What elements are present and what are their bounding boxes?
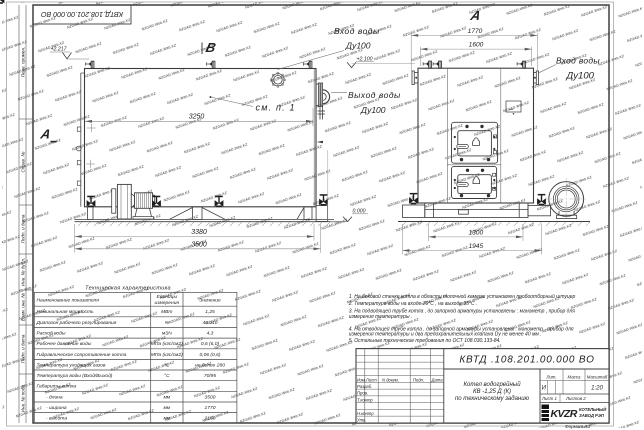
svg-text:МПа (кгс/см2): МПа (кгс/см2) [151,352,183,358]
svg-text:мм: мм [163,406,170,411]
svg-text:- длина: - длина [46,394,63,400]
svg-text:Перв. примен.: Перв. примен. [21,47,26,78]
svg-text:МПа (кгс/см2): МПа (кгс/см2) [151,341,183,347]
svg-text:2. Температура воды на вхо: 2. Температура воды на входе 70°С , на в… [348,301,478,307]
svg-text:Номинальная мощность: Номинальная мощность [37,309,95,315]
svg-text:N докум.: N докум. [382,377,399,382]
svg-text:1945: 1945 [468,243,483,250]
svg-text:Лит.: Лит. [545,374,556,379]
svg-text:Справ. №: Справ. № [21,152,26,173]
svg-text:Вход воды: Вход воды [334,26,380,36]
svg-text:3250: 3250 [189,114,205,121]
svg-text:Ду100: Ду100 [360,105,386,115]
svg-text:Габариты котла: Габариты котла [37,384,77,390]
svg-text:мм: мм [163,395,170,400]
svg-text:Листов 2: Листов 2 [565,396,586,401]
svg-text:Изм.Лист: Изм.Лист [357,377,377,382]
svg-text:Дата: Дата [431,377,444,382]
svg-text:Температура воды (Вход/Выход): Температура воды (Вход/Выход) [37,373,113,379]
svg-text:Котел водогрейный: Котел водогрейный [463,381,521,388]
svg-text:Масштаб: Масштаб [587,374,608,379]
svg-text:КВ -1,25 Д (К): КВ -1,25 Д (К) [473,389,511,395]
svg-text:1770: 1770 [468,28,483,35]
svg-text:1:20: 1:20 [591,386,603,392]
svg-text:И: И [542,386,547,392]
svg-text:по техническому заданию: по техническому заданию [455,396,530,402]
svg-text:КОТЕЛЬНЫЙ: КОТЕЛЬНЫЙ [579,407,607,412]
svg-text:1600: 1600 [469,42,484,49]
svg-text:40-110: 40-110 [203,320,218,326]
svg-text:°С: °С [164,373,170,379]
svg-text:см. п. 1: см. п. 1 [256,103,296,113]
svg-text:Выход воды: Выход воды [348,90,401,100]
svg-text:4,3: 4,3 [207,331,214,337]
svg-text:Взам. инв. №: Взам. инв. № [21,293,26,321]
svg-text:мм: мм [163,417,170,422]
svg-text:3380: 3380 [191,229,207,236]
svg-text:Формат А3: Формат А3 [565,424,591,429]
svg-text:Лист 1: Лист 1 [541,396,558,401]
svg-text:Разраб.: Разраб. [357,384,372,389]
svg-text:Подп. и дата: Подп. и дата [21,334,26,363]
svg-text:Ду100: Ду100 [566,71,595,82]
svg-text:Рабочее давление воды: Рабочее давление воды [37,341,92,347]
svg-text:Ду100: Ду100 [345,41,371,51]
svg-text:Масса: Масса [568,374,582,379]
svg-text:Подп. и дата: Подп. и дата [21,214,26,243]
svg-text:- высота: - высота [46,417,67,422]
svg-text:ЗАВОД РЭП: ЗАВОД РЭП [579,413,605,418]
svg-text:Расход воды: Расход воды [37,331,66,337]
svg-text:измерения температуры .: измерения температуры . [349,314,413,320]
svg-text:Подп.: Подп. [413,377,424,382]
svg-text:0.000: 0.000 [353,208,366,214]
svg-text:Инв. № дубл.: Инв. № дубл. [21,258,26,286]
svg-text:0,6 (6,0): 0,6 (6,0) [201,341,220,347]
svg-text:Единицы: Единицы [157,294,178,300]
svg-text:Значение: Значение [199,298,221,304]
svg-text:3500: 3500 [191,241,207,248]
svg-text:%: % [165,320,170,326]
svg-text:1,25: 1,25 [205,309,215,315]
svg-text:КВТД .108.201.00.000 ВО: КВТД .108.201.00.000 ВО [459,354,594,365]
svg-text:МВт: МВт [161,309,172,315]
svg-text:КВТД.108.201.00.000 ВО: КВТД.108.201.00.000 ВО [41,10,123,19]
svg-text:- ширина: - ширина [46,406,67,411]
svg-text:1770: 1770 [205,405,216,411]
svg-text:°С: °С [164,362,170,368]
svg-text:70/95: 70/95 [204,373,217,379]
svg-text:Инв. № подл.: Инв. № подл. [21,384,26,413]
svg-text:Температура уходящих газов: Температура уходящих газов [37,362,106,368]
svg-text:Гидравлическое сопротивление к: Гидравлическое сопротивление котла [37,352,127,358]
svg-text:Вход воды: Вход воды [556,56,600,66]
svg-text:KVZR: KVZR [551,408,578,420]
svg-text:1. На боковой стенке котла: 1. На боковой стенке котла в области топ… [349,293,576,300]
svg-text:Н.контр: Н.контр [357,411,374,416]
svg-text:3500: 3500 [205,394,216,400]
svg-text:Техническая характеристика: Техническая характеристика [85,285,171,291]
svg-text:+2.100: +2.100 [357,56,373,62]
svg-text:Утв.: Утв. [357,418,367,423]
svg-text:измерения температуры и два: измерения температуры и два предохраните… [349,332,542,338]
svg-text:Пров.: Пров. [357,391,368,396]
svg-text:2150: 2150 [204,416,216,422]
svg-text:Наименование показателя: Наименование показателя [37,298,100,304]
svg-text:Диапазон рабочего регулировани: Диапазон рабочего регулирования [36,320,117,326]
svg-text:5. Остальные технические тр: 5. Остальные технические требования по О… [349,338,501,344]
svg-text:0,06 (0,6): 0,06 (0,6) [200,352,221,358]
svg-text:не более 280: не более 280 [195,362,225,368]
svg-text:м3/ч: м3/ч [162,331,172,337]
svg-text:+2.217: +2.217 [51,47,68,53]
svg-text:измерения: измерения [155,301,180,306]
svg-text:Т.контр: Т.контр [357,397,373,402]
svg-text:1300: 1300 [468,229,483,236]
